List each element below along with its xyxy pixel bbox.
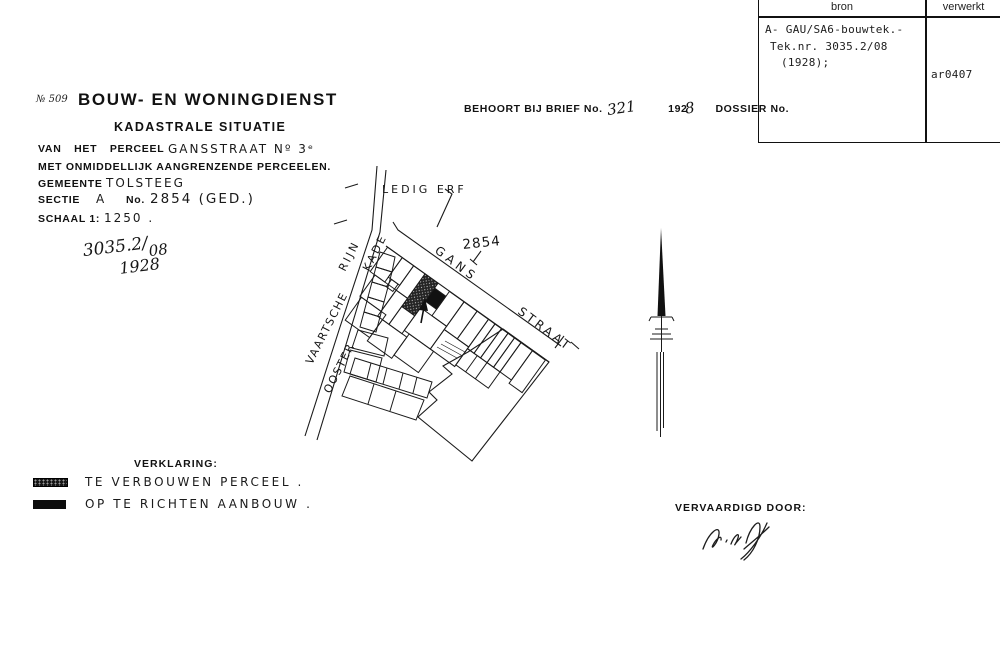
source-entry-line1: A- GAU/SA6-bouwtek.- <box>765 22 903 39</box>
dossier-label: DOSSIER No. <box>715 103 789 115</box>
sectie-value: A <box>96 192 106 206</box>
table-column-divider <box>925 0 927 143</box>
legend-title: VERKLARING: <box>134 458 330 470</box>
parcel-outline <box>364 297 384 317</box>
parcel-divider <box>466 356 478 372</box>
document-number: № 509 <box>36 94 68 105</box>
year-digit-handwritten: 8 <box>684 98 696 117</box>
parcel-outline <box>394 334 434 373</box>
site-plan-map: LEDIG ERF RIJN KADE VAARTSCHE OOSTER GAN… <box>280 155 620 485</box>
parcel-divider <box>475 363 487 379</box>
parcel-outline <box>500 343 532 380</box>
signature <box>690 515 790 565</box>
north-arrow-spike <box>658 228 666 316</box>
map-label-straat: STRAAT <box>515 304 575 354</box>
parcel-outline <box>360 312 380 332</box>
schaal-value: 1250 . <box>104 211 154 225</box>
brief-number-handwritten: 321 <box>606 97 637 119</box>
solid-swatch-icon <box>33 500 66 509</box>
quayside-parcels <box>342 252 432 420</box>
parcel-outline <box>487 333 514 367</box>
parcel-outline <box>367 320 407 359</box>
no-label: No. <box>126 194 145 206</box>
parcel-outline <box>467 319 494 353</box>
perceel-label: VAN HET PERCEEL <box>38 143 164 155</box>
brief-label: BEHOORT BIJ BRIEF No. <box>464 103 603 115</box>
legend-item-label: TE VERBOUWEN PERCEEL . <box>85 475 304 489</box>
perceel-value: GANSSTRAAT Nº 3ᵉ <box>168 142 315 156</box>
parcel-outline <box>481 329 508 363</box>
map-parcel-number: 2854 <box>462 233 502 253</box>
scanned-document: bron verwerkt A- GAU/SA6-bouwtek.- Tek.n… <box>0 0 1000 649</box>
source-entry: A- GAU/SA6-bouwtek.- Tek.nr. 3035.2/08 (… <box>765 22 903 72</box>
page-subtitle: KADASTRALE SITUATIE <box>114 120 286 134</box>
parcel-strip-band <box>350 358 432 398</box>
boundary-ticks <box>334 184 358 224</box>
reference-line: BEHOORT BIJ BRIEF No. 321 1928 DOSSIER N… <box>464 98 789 120</box>
parcel-dividers <box>367 363 417 393</box>
processed-code: ar0407 <box>931 68 973 81</box>
parcel-dividers <box>368 384 396 411</box>
drawing-number-suffix: 08 <box>148 240 169 260</box>
schaal-label: SCHAAL 1: <box>38 213 100 225</box>
map-label-rijn: RIJN <box>336 239 362 274</box>
parcel-outline <box>494 338 521 372</box>
parcel-number-leader <box>470 251 481 265</box>
north-arrow-tail-lines <box>657 352 664 437</box>
source-entry-line2: Tek.nr. 3035.2/08 <box>765 39 903 56</box>
parcel-outline <box>474 324 501 358</box>
hatched-swatch-icon <box>33 478 68 487</box>
legend-item: TE VERBOUWEN PERCEEL . <box>30 475 330 492</box>
verwerkt-column-header: verwerkt <box>926 1 1000 13</box>
map-label-ledig-erf: LEDIG ERF <box>382 183 467 196</box>
parcel-number-value: 2854 (GED.) <box>150 191 255 207</box>
signature-stroke <box>703 523 769 560</box>
gemeente-value: TOLSTEEG <box>106 176 185 190</box>
parcel-outline <box>430 330 468 367</box>
parcel-outline <box>368 282 388 302</box>
bron-column-header: bron <box>759 1 925 13</box>
sectie-label: SECTIE <box>38 194 80 206</box>
source-entry-line3: (1928); <box>765 55 903 72</box>
north-arrow-icon <box>640 220 684 445</box>
register-table: bron verwerkt A- GAU/SA6-bouwtek.- Tek.n… <box>758 0 1000 143</box>
legend-item: OP TE RICHTEN AANBOUW . <box>30 497 330 514</box>
page-title: BOUW- EN WONINGDIENST <box>78 90 338 110</box>
legend-item-label: OP TE RICHTEN AANBOUW . <box>85 497 312 511</box>
made-by-label: VERVAARDIGD DOOR: <box>675 502 807 514</box>
gemeente-label: GEMEENTE <box>38 178 103 190</box>
parcel-outline <box>509 351 545 393</box>
parcel-outline <box>404 308 446 349</box>
legend: VERKLARING: TE VERBOUWEN PERCEEL . OP TE… <box>30 458 330 514</box>
handwritten-drawing-number: 3035.2/08 1928 <box>82 231 171 282</box>
table-header-rule <box>759 16 1000 18</box>
